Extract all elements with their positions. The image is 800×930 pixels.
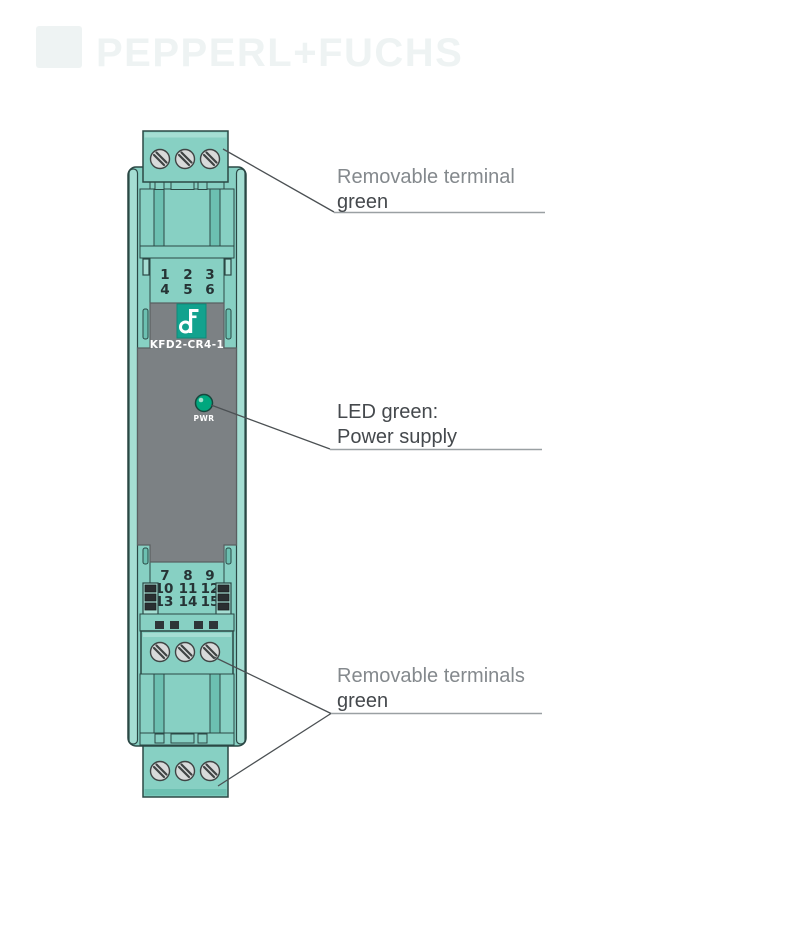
- terminal-number: 4: [160, 282, 169, 298]
- band-notch: [194, 621, 203, 629]
- led-green-icon: [196, 395, 213, 412]
- callout-bottom-terminals: Removable terminals green: [214, 657, 542, 786]
- callout-text-line2: green: [337, 191, 388, 213]
- callout-top-terminal: Removable terminal green: [223, 149, 545, 213]
- band-notch: [209, 621, 218, 629]
- screw-icon: [176, 643, 195, 662]
- upper-plug-groove-left: [154, 189, 164, 246]
- terminal-number: 6: [205, 282, 214, 298]
- terminal-number: 5: [183, 282, 192, 298]
- top-terminal-numbers: 1 2 3 4 5 6: [160, 267, 214, 298]
- terminal-clamp-left: [143, 583, 158, 615]
- terminal-number: 1: [160, 267, 169, 283]
- watermark: PEPPERL+FUCHS: [36, 26, 463, 75]
- lower-step-band: [140, 614, 234, 631]
- led-power-indicator: [196, 395, 213, 412]
- callout-text-line2: green: [337, 690, 388, 712]
- screw-icon: [151, 150, 170, 169]
- panel-clip-left: [143, 259, 149, 275]
- pepperl-fuchs-logo-watermark-icon: [36, 26, 82, 68]
- screw-icon: [151, 762, 170, 781]
- side-slot-lower-right: [226, 548, 231, 564]
- top-terminal-block: [143, 131, 228, 182]
- callout-text-line1: LED green:: [337, 401, 438, 423]
- lower-plug-groove-right: [210, 674, 220, 733]
- din-rail-left: [129, 169, 138, 744]
- lower-tab: [198, 734, 207, 743]
- upper-step-band: [140, 246, 234, 258]
- middle-terminal-block: [141, 631, 233, 675]
- band-notch: [170, 621, 179, 629]
- terminal-clamp-right: [216, 583, 231, 615]
- model-label: KFD2-CR4-1: [150, 339, 224, 351]
- screw-icon: [176, 150, 195, 169]
- screw-icon: [151, 643, 170, 662]
- side-slot-upper-right: [226, 309, 231, 339]
- terminal-number: 2: [183, 267, 192, 283]
- screw-icon: [201, 762, 220, 781]
- led-label: PWR: [193, 414, 214, 423]
- bottom-terminal-numbers: 7 8 9 10 11 12 13 14 15: [155, 568, 220, 610]
- side-slot-lower-left: [143, 548, 148, 564]
- pepperl-fuchs-logo-icon: [177, 304, 206, 338]
- callout-led: LED green: Power supply: [211, 401, 542, 450]
- device-illustration: PEPPERL+FUCHS 1 2 3 4 5 6 KFD2-CR4-1 P: [0, 0, 800, 930]
- upper-plug-groove-right: [210, 189, 220, 246]
- watermark-brand-text: PEPPERL+FUCHS: [96, 31, 463, 75]
- din-rail-right: [237, 169, 246, 744]
- callout-text-line1: Removable terminal: [337, 166, 515, 188]
- callout-text-line2: Power supply: [337, 426, 457, 448]
- callout-text-line1: Removable terminals: [337, 665, 525, 687]
- screw-icon: [176, 762, 195, 781]
- lower-plug-groove-left: [154, 674, 164, 733]
- terminal-number: 3: [205, 267, 214, 283]
- panel-clip-right: [225, 259, 231, 275]
- diagram-canvas: PEPPERL+FUCHS 1 2 3 4 5 6 KFD2-CR4-1 P: [0, 0, 800, 930]
- screw-icon: [201, 150, 220, 169]
- side-slot-upper-left: [143, 309, 148, 339]
- bottom-terminal-block: [143, 746, 228, 797]
- band-notch: [155, 621, 164, 629]
- terminal-number: 14: [179, 594, 198, 610]
- lower-tab: [171, 734, 194, 743]
- lower-tab: [155, 734, 164, 743]
- led-highlight: [199, 398, 204, 403]
